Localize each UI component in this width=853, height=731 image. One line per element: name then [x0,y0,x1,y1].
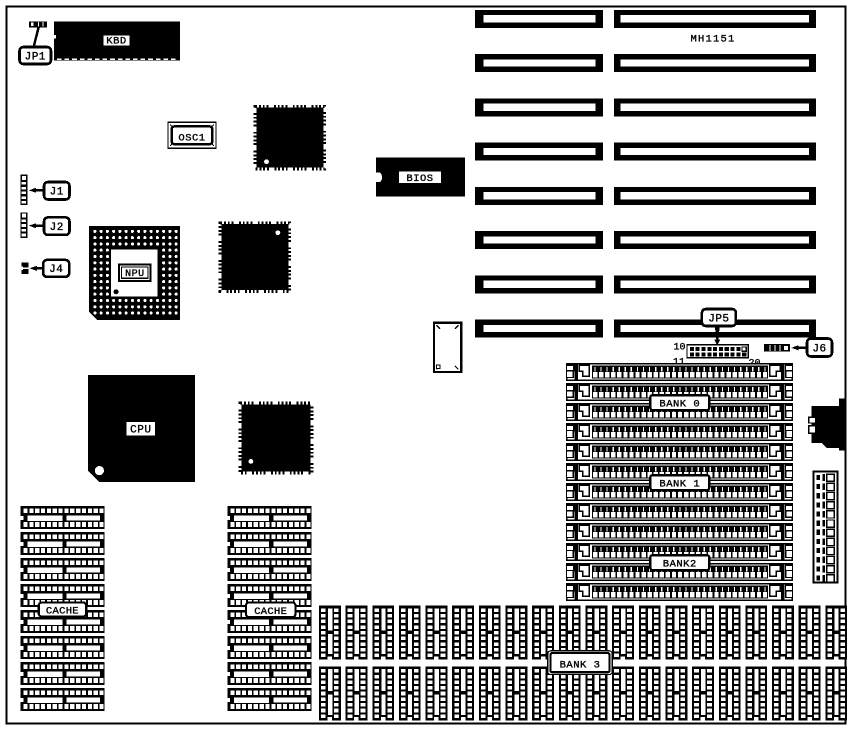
svg-text:KBD: KBD [106,36,126,48]
svg-text:BANK 1: BANK 1 [659,479,700,491]
svg-text:MH1151: MH1151 [690,34,735,46]
svg-text:J4: J4 [49,264,63,276]
svg-text:NPU: NPU [125,269,145,280]
svg-text:CACHE: CACHE [46,606,79,618]
svg-text:CACHE: CACHE [254,606,287,618]
svg-text:10: 10 [673,342,685,353]
svg-text:BIOS: BIOS [406,173,433,185]
svg-text:CPU: CPU [130,425,151,437]
svg-text:BANK2: BANK2 [663,559,697,571]
svg-text:JP5: JP5 [708,313,729,325]
svg-text:OSC1: OSC1 [178,132,205,144]
svg-text:J1: J1 [50,187,64,199]
svg-text:JP1: JP1 [25,51,46,63]
svg-text:J6: J6 [812,343,826,355]
svg-text:J2: J2 [50,222,64,234]
svg-text:BANK 0: BANK 0 [659,399,700,411]
svg-text:BANK 3: BANK 3 [560,659,601,671]
